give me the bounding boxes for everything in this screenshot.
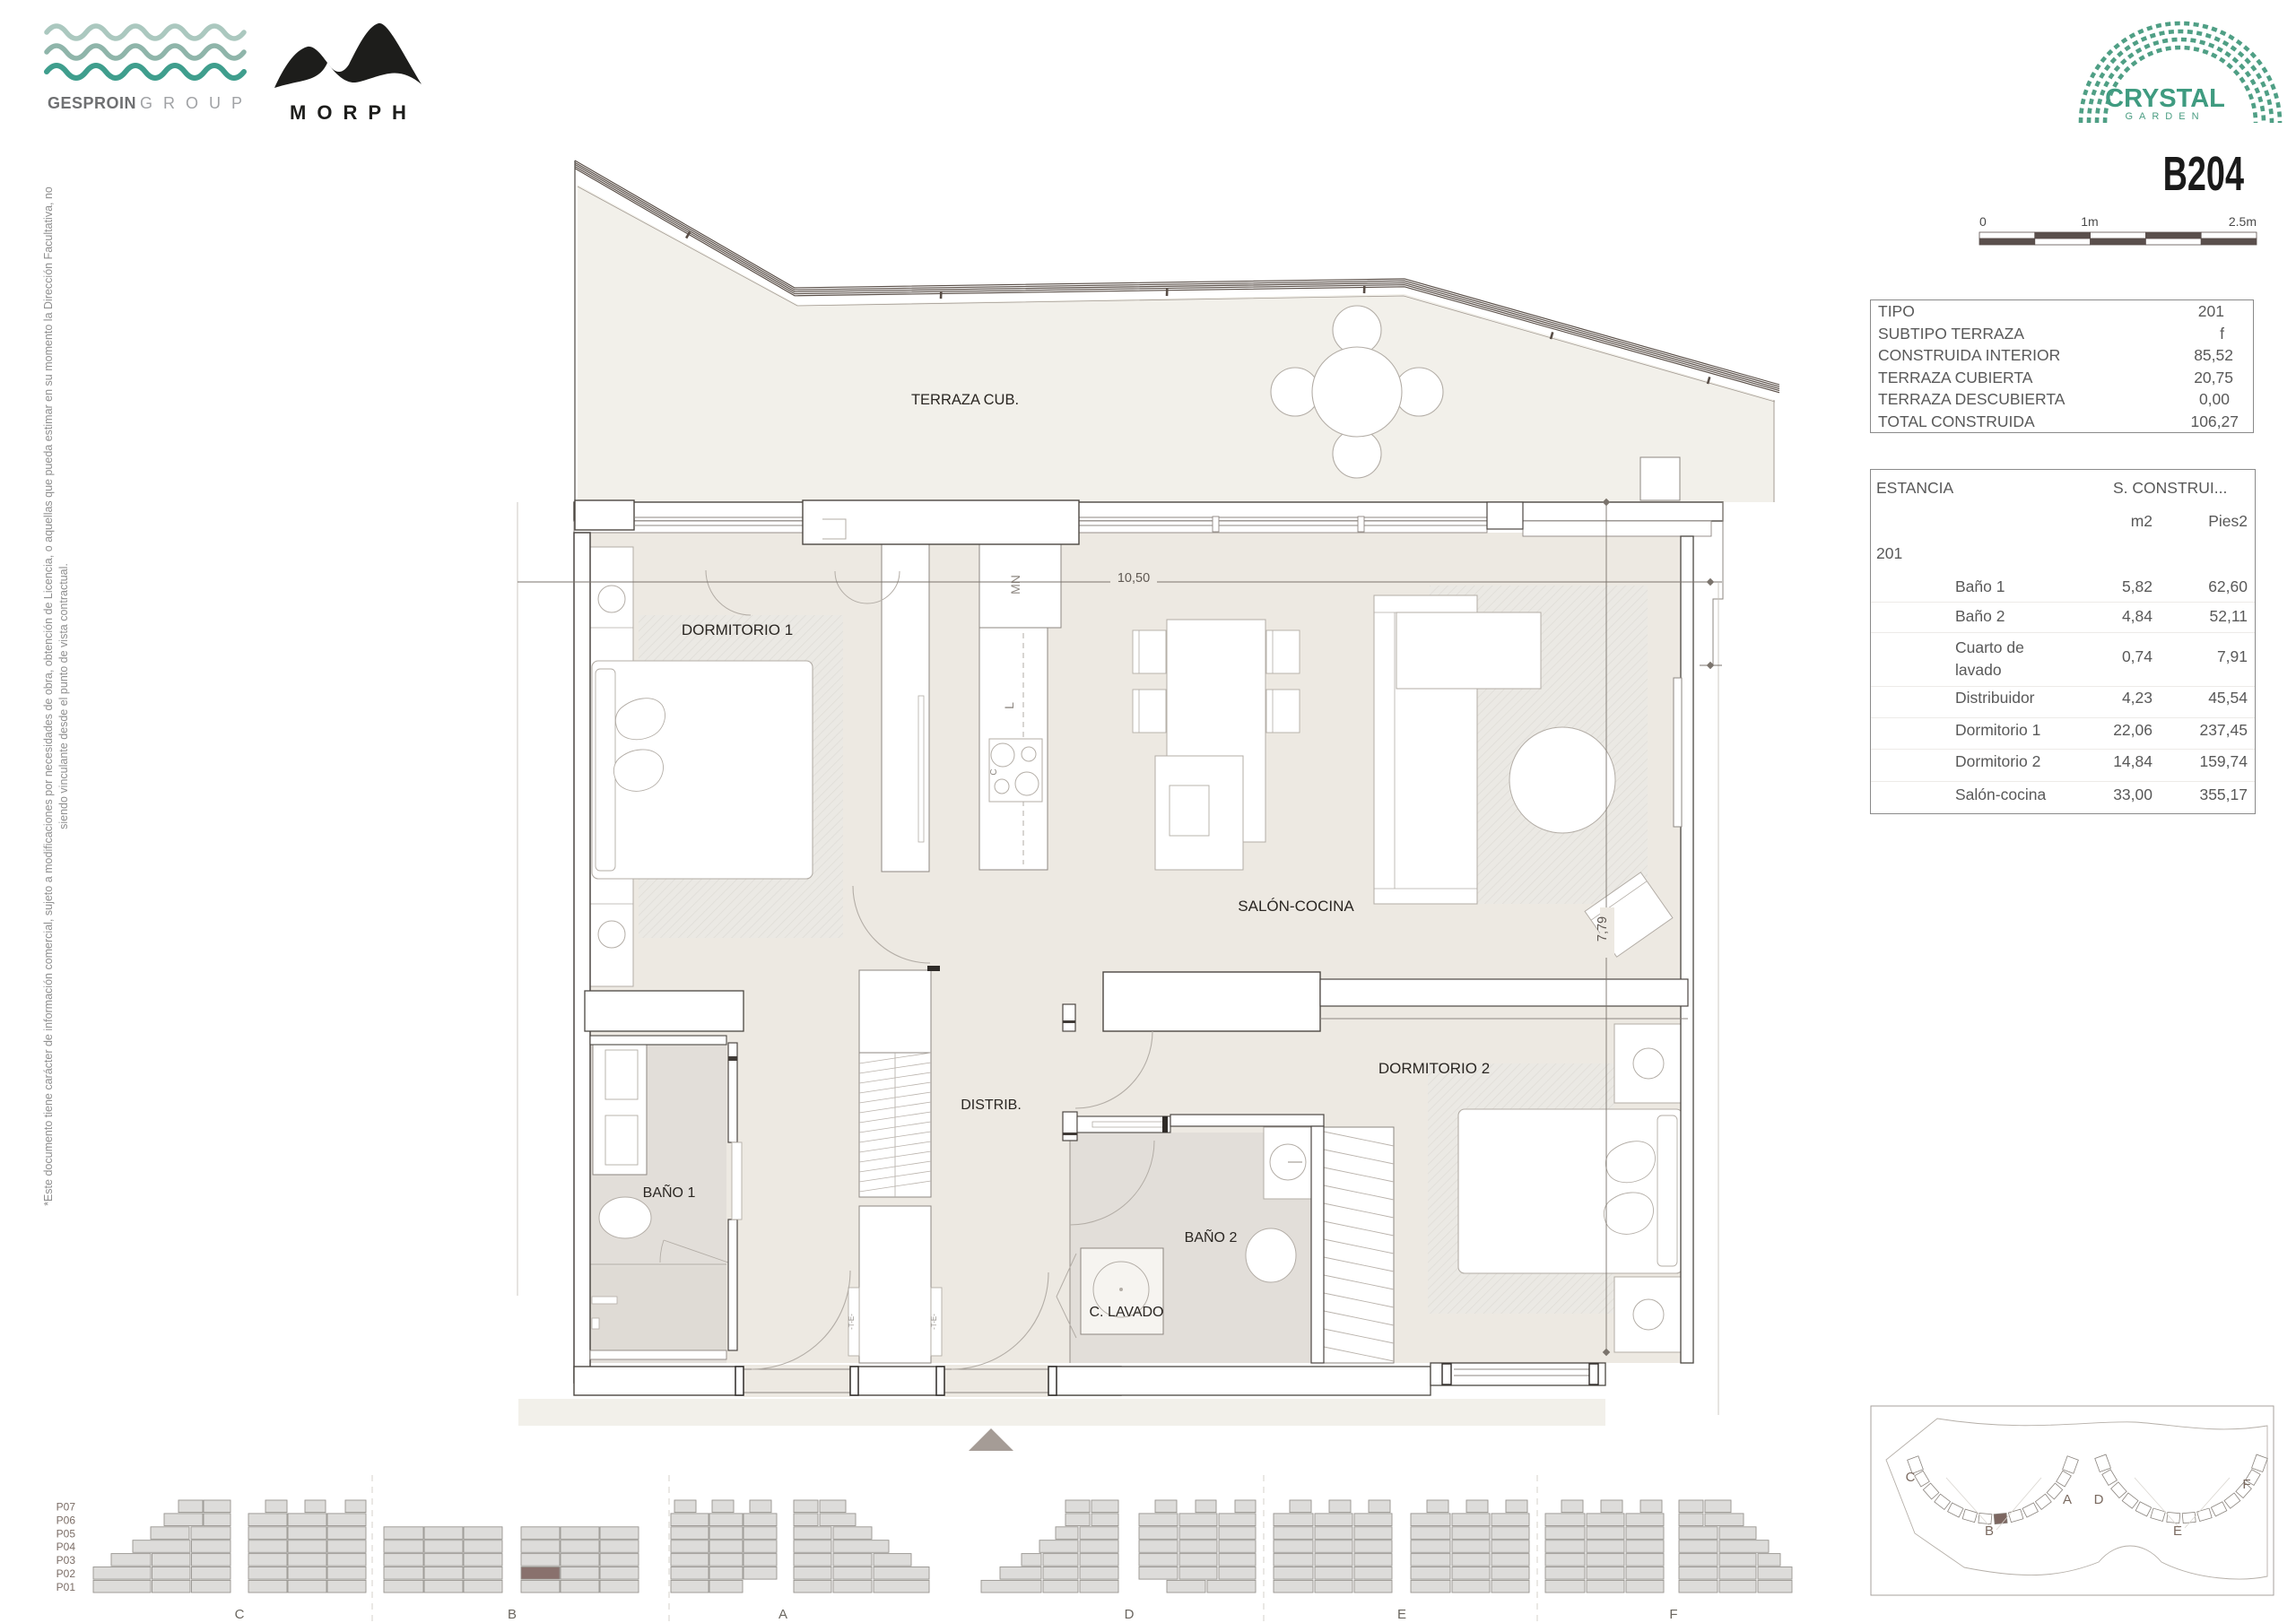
svg-text:A: A [778, 1607, 787, 1622]
svg-text:2.5m: 2.5m [2229, 214, 2257, 229]
svg-text:BAÑO 1: BAÑO 1 [643, 1183, 696, 1201]
svg-text:MORPH: MORPH [290, 101, 417, 124]
svg-text:P02: P02 [57, 1567, 76, 1580]
svg-text:10,50: 10,50 [1118, 571, 1150, 586]
svg-text:E: E [1397, 1607, 1406, 1622]
svg-text:C: C [989, 768, 999, 775]
svg-text:P06: P06 [57, 1514, 76, 1526]
svg-text:F: F [1669, 1607, 1677, 1622]
svg-text:-T-E-: -T-E- [848, 1314, 856, 1330]
svg-text:L: L [1002, 702, 1016, 709]
svg-text:P04: P04 [57, 1541, 76, 1553]
svg-text:F: F [2242, 1477, 2250, 1492]
svg-text:P05: P05 [57, 1527, 76, 1540]
svg-text:BAÑO 2: BAÑO 2 [1185, 1228, 1238, 1245]
svg-text:-T-E-: -T-E- [930, 1314, 938, 1330]
svg-text:B: B [1985, 1523, 1994, 1539]
svg-text:SALÓN-COCINA: SALÓN-COCINA [1238, 898, 1354, 915]
svg-text:B: B [508, 1607, 517, 1622]
svg-text:CRYSTAL: CRYSTAL [2105, 84, 2225, 113]
svg-text:P01: P01 [57, 1581, 76, 1593]
svg-text:DORMITORIO 1: DORMITORIO 1 [682, 621, 793, 638]
svg-text:GARDEN: GARDEN [2125, 111, 2205, 122]
svg-text:D: D [1125, 1607, 1135, 1622]
svg-text:0: 0 [1979, 214, 1987, 229]
svg-text:C: C [1906, 1470, 1916, 1485]
svg-text:E: E [2173, 1523, 2182, 1539]
svg-text:GESPROINGROUP: GESPROINGROUP [48, 94, 253, 112]
svg-text:A: A [2063, 1492, 2072, 1507]
svg-text:C: C [235, 1607, 245, 1622]
svg-text:C. LAVADO: C. LAVADO [1090, 1305, 1164, 1320]
svg-text:DORMITORIO 2: DORMITORIO 2 [1378, 1060, 1490, 1077]
svg-text:D: D [2094, 1492, 2104, 1507]
svg-text:P07: P07 [57, 1501, 76, 1514]
svg-text:7,79: 7,79 [1596, 916, 1610, 942]
svg-text:MN: MN [1008, 575, 1022, 595]
svg-text:DISTRIB.: DISTRIB. [961, 1098, 1022, 1113]
svg-text:1m: 1m [2081, 214, 2098, 229]
svg-text:TERRAZA CUB.: TERRAZA CUB. [911, 392, 1019, 408]
svg-text:P03: P03 [57, 1554, 76, 1567]
